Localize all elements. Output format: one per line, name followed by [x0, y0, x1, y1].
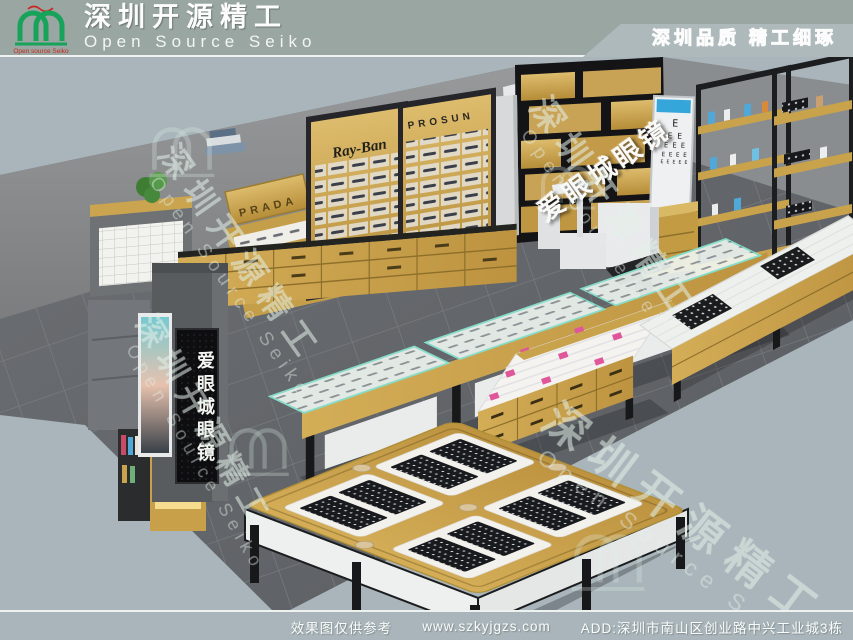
- footer-address: ADD:深圳市南山区创业路中兴工业城3栋: [581, 617, 843, 637]
- poster-lightbox: [138, 313, 172, 457]
- store-render: 爱眼城眼镜 爱眼城眼镜 PRADA Ray-Ban PROSUN E E E E…: [0, 57, 853, 610]
- logo-caption: Open source Seiko: [13, 48, 69, 55]
- header-bar: Open source Seiko 深圳开源精工 Open Source Sei…: [0, 0, 853, 57]
- brand-name-cn: 深圳开源精工: [84, 3, 316, 31]
- company-logo: Open source Seiko: [8, 1, 74, 55]
- brand-text: 深圳开源精工 Open Source Seiko: [84, 3, 316, 51]
- store-render-canvas: [0, 57, 853, 610]
- pillar-sign-board: [176, 329, 218, 483]
- render-poster: Open source Seiko 深圳开源精工 Open Source Sei…: [0, 0, 853, 640]
- brand-name-en: Open Source Seiko: [84, 32, 316, 52]
- footer-website: www.szkyjgzs.com: [422, 619, 551, 634]
- logo-monogram-right: [36, 13, 62, 41]
- footer-disclaimer: 效果图仅供参考: [291, 617, 393, 637]
- header-tagline: 深圳品质 精工细琢: [652, 24, 837, 50]
- footer-bar: 效果图仅供参考 www.szkyjgzs.com ADD:深圳市南山区创业路中兴…: [0, 610, 853, 640]
